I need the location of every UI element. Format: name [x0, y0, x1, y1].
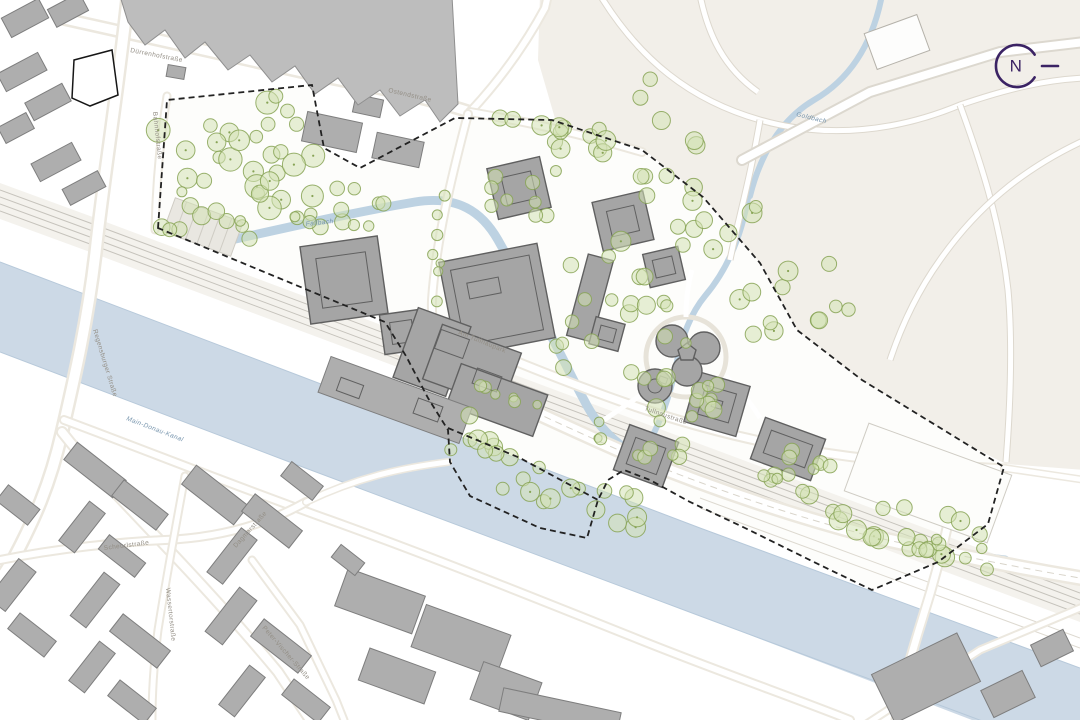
tree	[584, 334, 599, 349]
tree	[235, 216, 246, 227]
tree	[652, 112, 670, 130]
tree-center-dot	[266, 102, 268, 104]
tree	[959, 552, 971, 564]
tree	[668, 450, 678, 460]
tree	[745, 326, 761, 342]
tree	[509, 396, 521, 408]
tree	[602, 250, 616, 264]
tree-center-dot	[312, 155, 314, 157]
compass-north-letter: N	[1010, 57, 1023, 76]
building	[25, 83, 71, 120]
tree-center-dot	[252, 170, 254, 172]
tree	[637, 372, 651, 386]
building	[300, 236, 388, 324]
tree-center-dot	[787, 270, 789, 272]
tree-center-dot	[293, 164, 295, 166]
tree	[556, 337, 569, 350]
tree	[633, 90, 648, 105]
tree	[594, 417, 604, 427]
tree	[242, 231, 257, 246]
tree-center-dot	[620, 240, 622, 242]
tree	[811, 312, 828, 329]
tree	[578, 293, 591, 306]
tree	[533, 400, 542, 409]
tree-center-dot	[773, 330, 775, 332]
tree	[919, 543, 934, 558]
tree	[485, 199, 498, 212]
tree	[823, 459, 837, 473]
tree-center-dot	[691, 200, 693, 202]
tree	[290, 212, 300, 222]
building	[166, 65, 186, 80]
tree	[775, 280, 790, 295]
tree	[529, 209, 543, 223]
tree	[496, 482, 509, 495]
tree	[526, 175, 540, 189]
tree	[491, 390, 500, 399]
tree	[743, 283, 761, 301]
tree	[609, 514, 627, 532]
tree	[643, 441, 658, 456]
tree	[330, 181, 345, 196]
tree-center-dot	[549, 498, 551, 500]
tree	[439, 190, 450, 201]
tree	[705, 401, 722, 418]
tree-center-dot	[216, 141, 218, 143]
tree	[197, 173, 212, 188]
canal-label: Main-Donau-Kanal	[125, 415, 184, 443]
tree	[376, 196, 391, 211]
tree	[639, 188, 655, 204]
tree	[676, 238, 691, 253]
tree	[782, 468, 795, 481]
tree	[269, 89, 283, 103]
tree-center-dot	[570, 487, 572, 489]
tree	[822, 256, 837, 271]
building	[8, 613, 57, 657]
tree-center-dot	[712, 248, 714, 250]
building	[335, 568, 426, 634]
tree	[657, 371, 673, 387]
tree	[606, 294, 618, 306]
tree	[686, 411, 697, 422]
street-label: Wassertorstraße	[164, 587, 177, 641]
tree	[533, 461, 545, 473]
tree-center-dot	[228, 131, 230, 133]
tree	[334, 202, 349, 217]
tree	[772, 473, 783, 484]
tree	[434, 267, 443, 276]
tree	[671, 219, 686, 234]
tree	[529, 196, 541, 208]
tree	[261, 117, 275, 131]
tree	[842, 303, 855, 316]
tree-center-dot	[560, 148, 562, 150]
tree-center-dot	[602, 152, 604, 154]
tree-center-dot	[529, 491, 531, 493]
tree-center-dot	[280, 199, 282, 201]
tree	[432, 210, 442, 220]
tree	[681, 338, 691, 348]
tree	[281, 104, 295, 118]
building	[70, 572, 120, 628]
building	[31, 142, 81, 181]
tree-center-dot	[185, 149, 187, 151]
building	[0, 52, 47, 91]
tree-center-dot	[940, 553, 942, 555]
tree	[587, 501, 605, 519]
tree	[624, 365, 639, 380]
building	[1, 0, 48, 38]
tree	[428, 249, 438, 259]
tree-center-dot	[855, 529, 857, 531]
tree	[501, 194, 513, 206]
building	[358, 648, 435, 704]
tree	[658, 329, 673, 344]
tree	[834, 505, 852, 523]
building	[69, 641, 116, 693]
tree	[432, 296, 443, 307]
tree	[348, 183, 360, 195]
tree	[897, 500, 913, 516]
tree	[208, 203, 225, 220]
tree	[432, 229, 443, 240]
tree-center-dot	[229, 158, 231, 160]
tree	[830, 300, 843, 313]
tree	[898, 529, 915, 546]
tree	[981, 563, 994, 576]
tree	[977, 543, 987, 553]
tree	[758, 470, 770, 482]
tree	[661, 300, 673, 312]
site-plan-map: Dürrenhofstraße Ostendstraße Bahnhofstra…	[0, 0, 1080, 720]
tree	[595, 433, 607, 445]
tree	[636, 268, 653, 285]
tree	[763, 316, 777, 330]
tree	[796, 484, 810, 498]
outlined-plot	[72, 50, 118, 106]
tree	[876, 501, 890, 515]
tree	[556, 360, 572, 376]
tree	[696, 212, 713, 229]
tree	[485, 181, 499, 195]
tree	[177, 187, 187, 197]
tree-center-dot	[636, 516, 638, 518]
building	[219, 665, 266, 717]
tree-center-dot	[541, 124, 543, 126]
tree	[637, 296, 655, 314]
map-canvas: Dürrenhofstraße Ostendstraße Bahnhofstra…	[0, 0, 1080, 720]
building	[499, 688, 621, 720]
tree	[348, 219, 359, 230]
tree	[204, 119, 218, 133]
tree	[250, 130, 263, 143]
tree	[290, 117, 304, 131]
tree-center-dot	[186, 177, 188, 179]
tree-center-dot	[311, 195, 313, 197]
tree	[808, 464, 819, 475]
tree	[461, 407, 478, 424]
tree	[364, 221, 374, 231]
building	[0, 113, 34, 144]
tree	[623, 296, 639, 312]
tree-center-dot	[269, 180, 271, 182]
tree	[550, 166, 561, 177]
tree	[659, 168, 674, 183]
tree-center-dot	[959, 520, 961, 522]
tree	[703, 380, 714, 391]
tree-center-dot	[739, 298, 741, 300]
tree	[474, 380, 486, 392]
tree	[749, 201, 762, 214]
building	[282, 679, 331, 720]
tree-center-dot	[605, 139, 607, 141]
tree	[565, 315, 578, 328]
tree	[685, 132, 703, 150]
tree	[163, 223, 177, 237]
tree	[436, 259, 444, 267]
tree	[931, 534, 942, 545]
tree	[782, 450, 797, 465]
tree-center-dot	[268, 207, 270, 209]
tree-center-dot	[238, 139, 240, 141]
tree	[445, 444, 457, 456]
tree	[633, 169, 649, 185]
tree	[563, 257, 578, 272]
tree-center-dot	[558, 126, 560, 128]
tree	[643, 72, 657, 86]
tree	[620, 486, 634, 500]
